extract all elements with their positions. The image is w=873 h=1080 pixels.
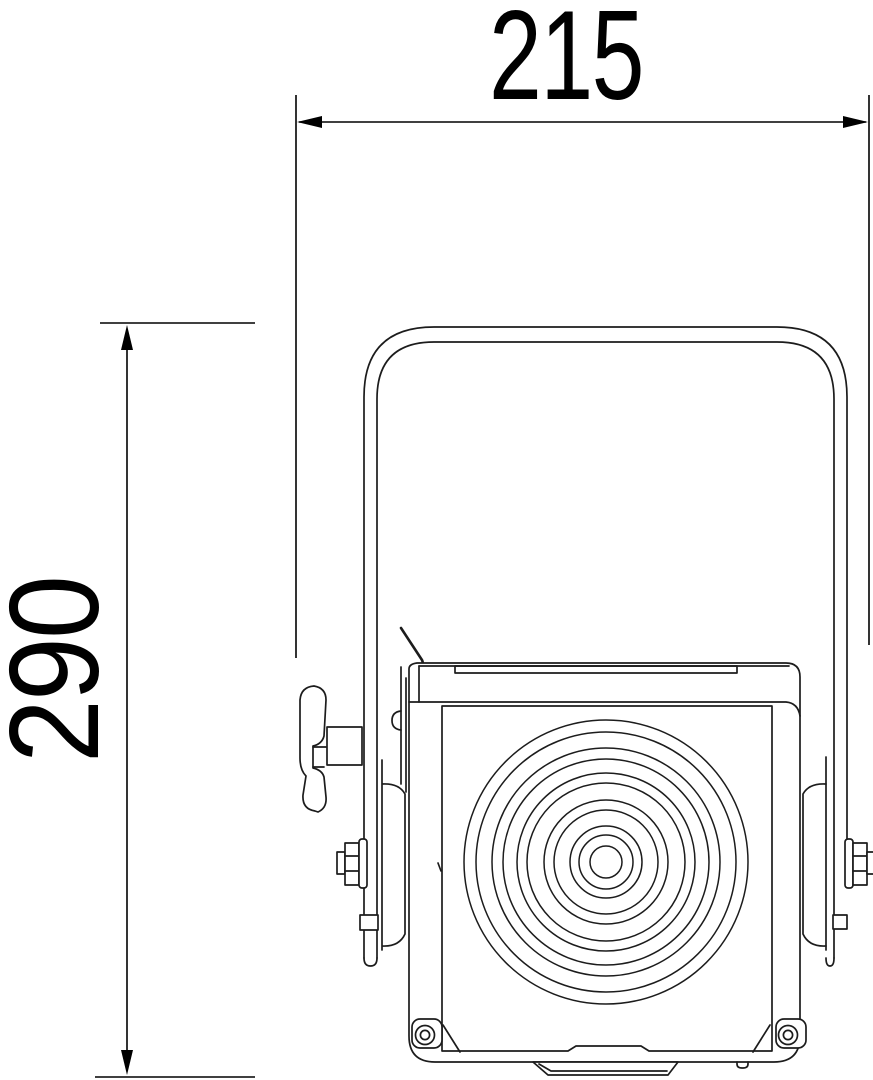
yoke-arm-left-end-cap bbox=[364, 958, 377, 966]
bottom-bump bbox=[737, 1062, 748, 1068]
height-dimension-label: 290 bbox=[0, 577, 125, 763]
focus-lever bbox=[401, 628, 423, 668]
bottom-foot bbox=[533, 1062, 748, 1075]
tilt-knob bbox=[300, 686, 326, 812]
side-plate-right bbox=[803, 784, 826, 946]
pivot-bolt-right bbox=[845, 839, 873, 888]
width-arrowhead-right bbox=[843, 116, 868, 128]
side-plate-left bbox=[382, 760, 405, 950]
pivot-bolt-right-hex bbox=[853, 843, 867, 885]
bottom-foot-outline bbox=[533, 1062, 678, 1075]
pivot-bolt-left-flange bbox=[359, 839, 367, 888]
side-screw-head bbox=[392, 711, 401, 730]
width-arrowhead-left bbox=[297, 116, 322, 128]
fixture-dimension-drawing: 215 290 bbox=[0, 0, 873, 1080]
height-arrowhead-top bbox=[121, 325, 133, 350]
width-dimension-label: 215 bbox=[489, 0, 643, 126]
left-side-assembly bbox=[300, 628, 423, 950]
yoke-arm-right-end-cap bbox=[826, 958, 834, 966]
height-arrowhead-bottom bbox=[121, 1050, 133, 1075]
knob-shaft bbox=[327, 727, 362, 765]
height-dimension: 290 bbox=[0, 323, 255, 1077]
pivot-bolt-right-flange bbox=[845, 839, 853, 888]
pivot-bolt-right-tip bbox=[867, 852, 873, 874]
right-side-assembly bbox=[803, 784, 873, 946]
pivot-bolt-left-hex bbox=[345, 843, 359, 885]
width-dimension: 215 bbox=[296, 0, 869, 658]
technical-drawing-canvas: 215 290 bbox=[0, 0, 873, 1080]
pivot-bolt-left bbox=[337, 839, 367, 888]
step-bracket-left bbox=[360, 915, 378, 930]
housing bbox=[409, 663, 806, 1075]
pivot-bolt-left-tip bbox=[337, 852, 345, 874]
step-bracket-right bbox=[833, 915, 847, 929]
